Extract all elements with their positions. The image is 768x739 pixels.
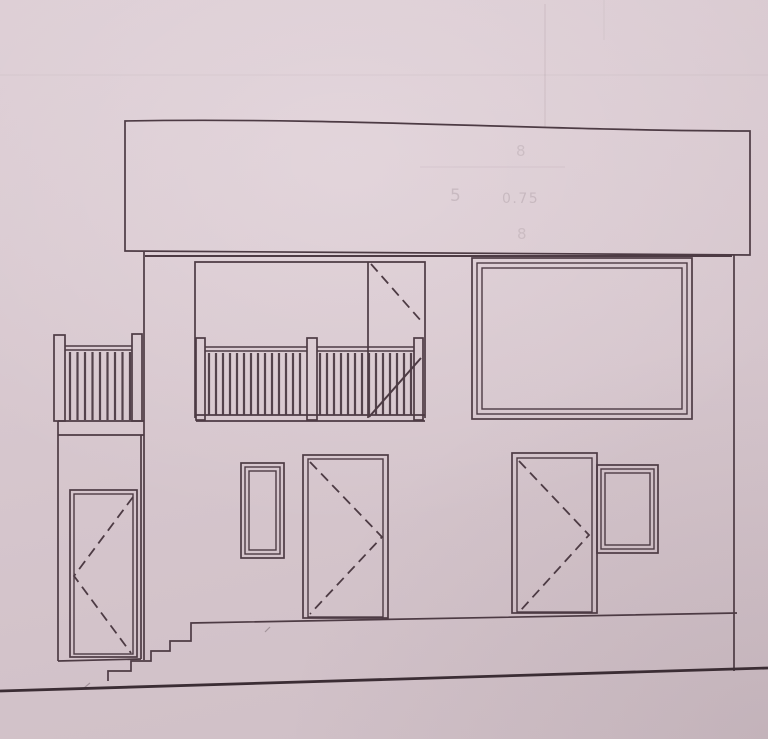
middle-door-swing-dashes [310,462,382,614]
ghost-dim-left: 5 [450,186,461,206]
balcony-top-rail [205,347,414,351]
left-door-swing-dashes [74,497,133,653]
balcony-balusters-left [209,353,300,415]
ground-floor [241,255,734,671]
left-balcony-railing [54,334,142,421]
large-window-frame-inner [482,268,682,409]
railing-post-left [54,335,65,421]
balcony-post-right [414,338,423,420]
middle-door-frame-outer [303,455,388,618]
right-door-swing-dashes [519,461,589,610]
paper-artifacts: 8 5 0.75 8 [0,0,768,688]
right-window-frame-middle [601,469,654,549]
right-small-window [597,465,658,553]
railing-post-right [132,334,142,421]
left-balcony-slab [58,421,144,435]
elevation-drawing: 8 5 0.75 8 [0,0,768,739]
left-wall-base [58,659,141,661]
middle-door-frame-inner [308,459,383,617]
ghost-dim-middle: 0.75 [502,191,539,207]
right-window-frame-inner [605,473,650,545]
railing-balusters [70,352,130,420]
middle-door [303,455,388,618]
upper-door-swing-dash [371,264,422,322]
roof-outline [125,120,750,255]
slab-lines [58,421,144,435]
large-window-frame-outer [472,258,692,419]
right-door-frame-outer [512,453,597,613]
left-wing [54,252,144,661]
large-window [472,258,692,419]
railing-top-rail [65,346,132,350]
balcony-post-left [196,338,205,420]
right-door-frame-inner [517,458,592,612]
small-window-frame-inner [249,471,276,550]
upper-balcony-door [371,264,422,322]
ghost-dim-top: 8 [516,142,526,160]
left-door-frame-inner [74,494,133,654]
paper-speck-2 [265,627,270,632]
elevation-canvas: 8 5 0.75 8 [0,0,768,739]
left-door [70,490,137,657]
large-window-frame-middle [477,263,687,414]
balcony-railing [196,338,425,421]
small-window-frame-outer [241,463,284,558]
right-window-frame-outer [597,465,658,553]
left-small-window [241,463,284,558]
balcony-post-middle [307,338,317,420]
roof [125,120,750,256]
left-wall [58,252,144,661]
upper-floor [195,258,692,421]
ghost-dim-bottom: 8 [517,225,527,243]
small-window-frame-middle [245,467,280,554]
left-door-frame-outer [70,490,137,657]
right-door [512,453,597,613]
